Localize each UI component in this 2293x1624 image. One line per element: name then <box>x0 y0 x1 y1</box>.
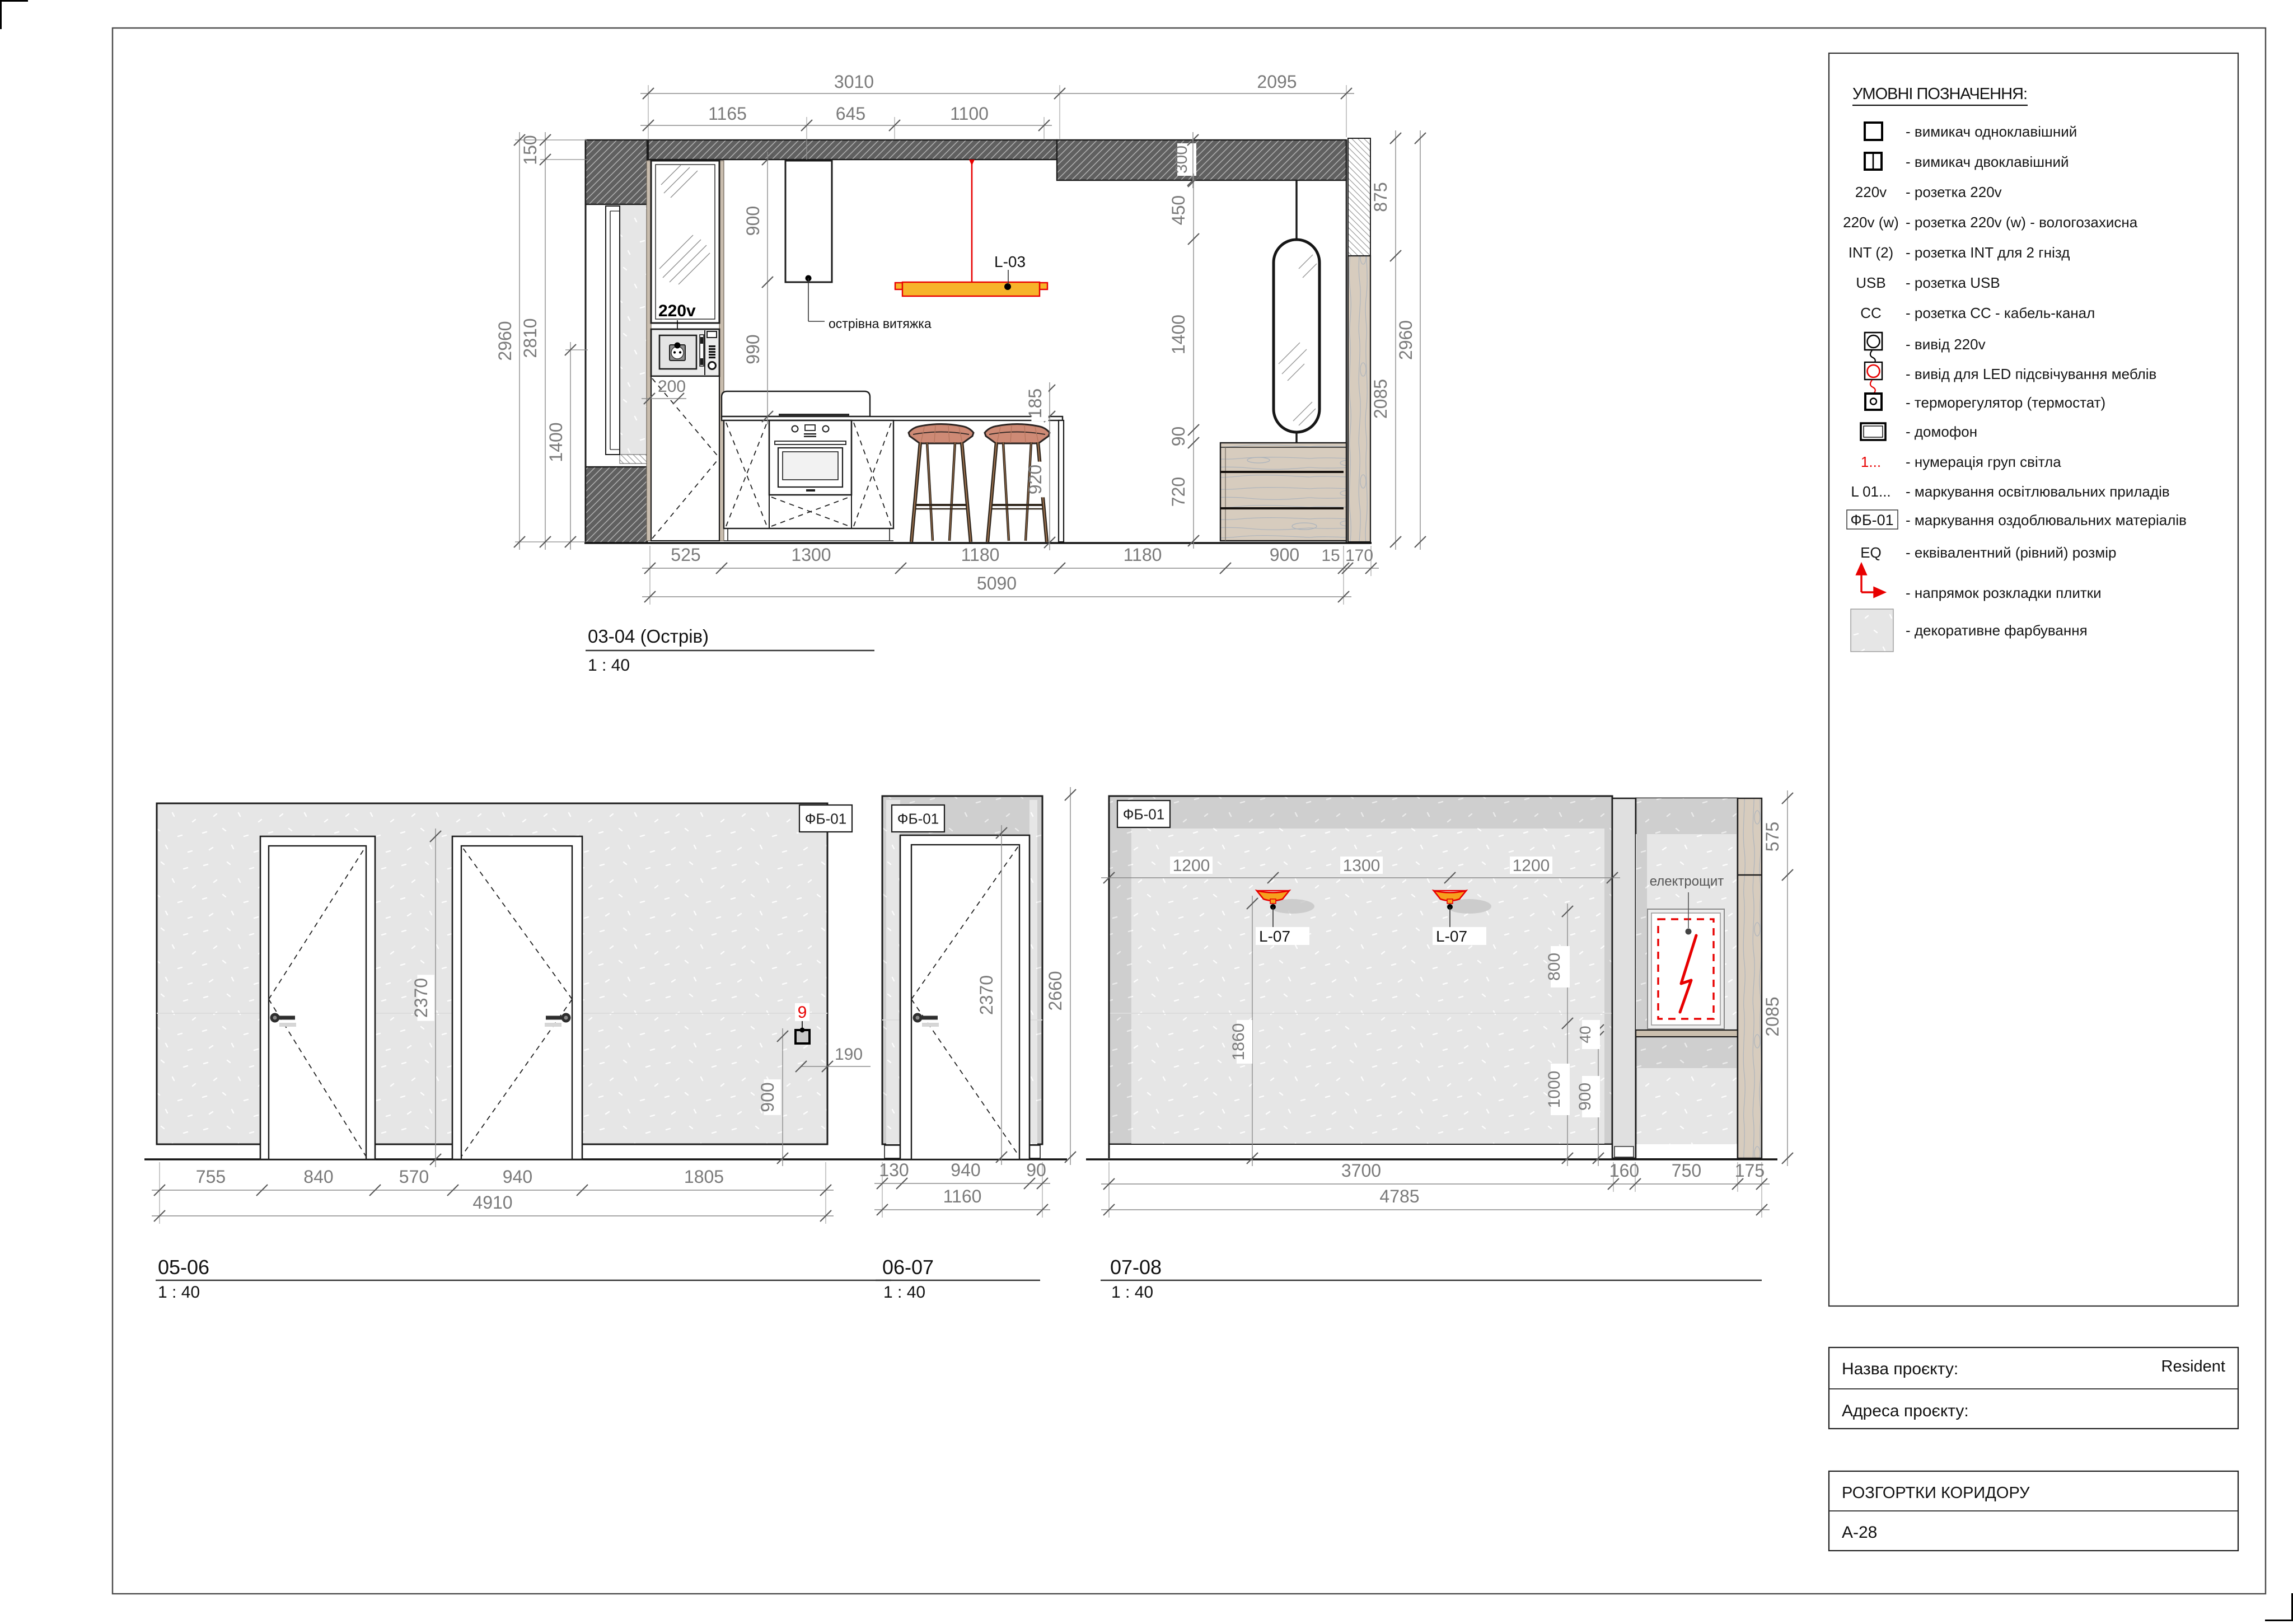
svg-text:05-06: 05-06 <box>158 1256 209 1279</box>
svg-text:ФБ-01: ФБ-01 <box>1850 512 1893 528</box>
svg-text:1 : 40: 1 : 40 <box>588 656 630 675</box>
svg-text:2095: 2095 <box>1257 72 1297 92</box>
svg-text:5090: 5090 <box>977 573 1017 593</box>
svg-text:450: 450 <box>1168 195 1188 225</box>
svg-text:- декоративне фарбування: - декоративне фарбування <box>1906 622 2088 639</box>
svg-text:1165: 1165 <box>708 104 747 124</box>
svg-text:ФБ-01: ФБ-01 <box>805 810 846 827</box>
svg-text:L-07: L-07 <box>1436 928 1467 945</box>
svg-text:800: 800 <box>1545 953 1564 981</box>
svg-text:07-08: 07-08 <box>1110 1256 1162 1279</box>
svg-text:1300: 1300 <box>1343 857 1381 875</box>
svg-text:575: 575 <box>1762 822 1782 851</box>
svg-text:1860: 1860 <box>1229 1023 1248 1061</box>
svg-text:220v: 220v <box>1855 184 1887 200</box>
svg-text:1100: 1100 <box>950 104 989 124</box>
svg-text:- еквівалентний (рівний) розмі: - еквівалентний (рівний) розмір <box>1906 544 2116 561</box>
svg-text:900: 900 <box>1270 545 1299 565</box>
svg-text:РОЗГОРТКИ КОРИДОРУ: РОЗГОРТКИ КОРИДОРУ <box>1842 1484 2030 1502</box>
svg-text:15: 15 <box>1321 546 1340 565</box>
svg-text:4785: 4785 <box>1379 1186 1419 1206</box>
svg-text:130: 130 <box>879 1160 909 1180</box>
svg-text:1400: 1400 <box>1168 315 1188 354</box>
svg-text:525: 525 <box>671 545 700 565</box>
svg-text:ФБ-01: ФБ-01 <box>897 810 939 827</box>
svg-text:А-28: А-28 <box>1842 1523 1877 1542</box>
svg-text:- вивід 220v: - вивід 220v <box>1906 336 1986 353</box>
svg-text:300: 300 <box>1172 146 1191 174</box>
svg-text:- розетка USB: - розетка USB <box>1906 274 2000 291</box>
svg-text:1180: 1180 <box>961 545 1000 565</box>
svg-text:200: 200 <box>658 377 686 396</box>
svg-text:1300: 1300 <box>791 545 831 565</box>
svg-text:755: 755 <box>196 1167 226 1187</box>
svg-text:1...: 1... <box>1861 453 1881 470</box>
svg-text:90: 90 <box>1026 1160 1046 1180</box>
svg-text:03-04 (Острів): 03-04 (Острів) <box>588 626 709 647</box>
svg-text:- домофон: - домофон <box>1906 423 1977 440</box>
svg-text:9: 9 <box>798 1003 807 1022</box>
svg-text:- терморегулятор (термостат): - терморегулятор (термостат) <box>1906 394 2105 411</box>
svg-text:940: 940 <box>951 1160 980 1180</box>
svg-text:1 : 40: 1 : 40 <box>158 1283 200 1302</box>
svg-text:2370: 2370 <box>411 978 431 1018</box>
svg-text:175: 175 <box>1735 1160 1765 1181</box>
svg-text:1000: 1000 <box>1545 1071 1564 1108</box>
svg-text:2085: 2085 <box>1370 379 1391 419</box>
svg-text:- вивід для LED підсвічування: - вивід для LED підсвічування меблів <box>1906 366 2156 382</box>
svg-text:- маркування освітлювальних пр: - маркування освітлювальних приладів <box>1906 483 2170 500</box>
svg-text:острівна витяжка: острівна витяжка <box>829 316 932 331</box>
svg-text:40: 40 <box>1576 1026 1594 1043</box>
svg-text:УМОВНІ ПОЗНАЧЕННЯ:: УМОВНІ ПОЗНАЧЕННЯ: <box>1852 85 2027 103</box>
svg-text:920: 920 <box>1025 465 1045 494</box>
svg-text:720: 720 <box>1168 477 1188 507</box>
svg-text:875: 875 <box>1370 182 1391 212</box>
svg-text:- нумерація груп світла: - нумерація груп світла <box>1906 453 2061 470</box>
svg-text:900: 900 <box>743 206 763 236</box>
svg-text:1200: 1200 <box>1513 857 1550 875</box>
svg-text:160: 160 <box>1609 1160 1639 1181</box>
svg-text:645: 645 <box>836 104 865 124</box>
svg-text:3700: 3700 <box>1341 1160 1381 1181</box>
svg-text:750: 750 <box>1672 1160 1701 1181</box>
svg-text:USB: USB <box>1856 274 1885 291</box>
svg-text:220v (w): 220v (w) <box>1843 214 1899 231</box>
svg-text:- розетка INT для 2 гнізд: - розетка INT для 2 гнізд <box>1906 244 2070 261</box>
svg-text:1 : 40: 1 : 40 <box>1111 1283 1153 1302</box>
svg-text:90: 90 <box>1168 427 1188 447</box>
svg-text:L 01...: L 01... <box>1851 483 1890 500</box>
svg-text:940: 940 <box>503 1167 532 1187</box>
svg-text:900: 900 <box>757 1082 778 1112</box>
svg-text:2960: 2960 <box>495 321 515 361</box>
svg-text:150: 150 <box>520 135 540 165</box>
svg-text:ФБ-01: ФБ-01 <box>1123 806 1164 822</box>
svg-text:1805: 1805 <box>684 1167 724 1187</box>
svg-text:185: 185 <box>1025 389 1045 418</box>
svg-text:2960: 2960 <box>1396 320 1416 360</box>
svg-text:1160: 1160 <box>943 1186 982 1206</box>
svg-text:Назва проєкту:: Назва проєкту: <box>1842 1360 1958 1378</box>
svg-text:Resident: Resident <box>2161 1358 2225 1375</box>
svg-text:220v: 220v <box>658 302 696 320</box>
svg-text:- розетка 220v: - розетка 220v <box>1906 184 2002 200</box>
svg-text:900: 900 <box>1576 1083 1594 1111</box>
svg-text:3010: 3010 <box>834 72 874 92</box>
svg-text:1180: 1180 <box>1124 545 1162 565</box>
svg-text:2660: 2660 <box>1045 971 1065 1010</box>
svg-text:1400: 1400 <box>546 422 566 462</box>
svg-text:- напрямок розкладки плитки: - напрямок розкладки плитки <box>1906 584 2102 601</box>
svg-text:1200: 1200 <box>1173 857 1210 875</box>
svg-text:СС: СС <box>1860 305 1882 321</box>
svg-text:- розетка 220v (w) - вологозах: - розетка 220v (w) - вологозахисна <box>1906 214 2138 231</box>
svg-text:EQ: EQ <box>1860 544 1882 561</box>
svg-text:- розетка СС - кабель-канал: - розетка СС - кабель-канал <box>1906 305 2095 321</box>
svg-text:електрощит: електрощит <box>1650 874 1724 889</box>
svg-text:Адреса проєкту:: Адреса проєкту: <box>1842 1402 1969 1420</box>
svg-text:L-03: L-03 <box>994 253 1026 270</box>
svg-text:2370: 2370 <box>976 975 996 1015</box>
svg-text:INT (2): INT (2) <box>1849 244 1893 261</box>
svg-text:840: 840 <box>303 1167 333 1187</box>
svg-text:990: 990 <box>743 334 763 364</box>
svg-text:4910: 4910 <box>472 1192 512 1213</box>
svg-text:- маркування оздоблювальних ма: - маркування оздоблювальних матеріалів <box>1906 512 2187 528</box>
svg-text:190: 190 <box>835 1045 863 1064</box>
svg-text:170: 170 <box>1345 546 1373 565</box>
svg-text:2085: 2085 <box>1762 996 1782 1036</box>
svg-text:- вимикач двоклавішний: - вимикач двоклавішний <box>1906 153 2069 170</box>
svg-text:1 : 40: 1 : 40 <box>883 1283 925 1302</box>
svg-text:570: 570 <box>399 1167 429 1187</box>
svg-text:06-07: 06-07 <box>882 1256 934 1279</box>
svg-text:L-07: L-07 <box>1259 928 1290 945</box>
svg-text:- вимикач одноклавішний: - вимикач одноклавішний <box>1906 123 2077 140</box>
svg-text:2810: 2810 <box>520 318 540 358</box>
